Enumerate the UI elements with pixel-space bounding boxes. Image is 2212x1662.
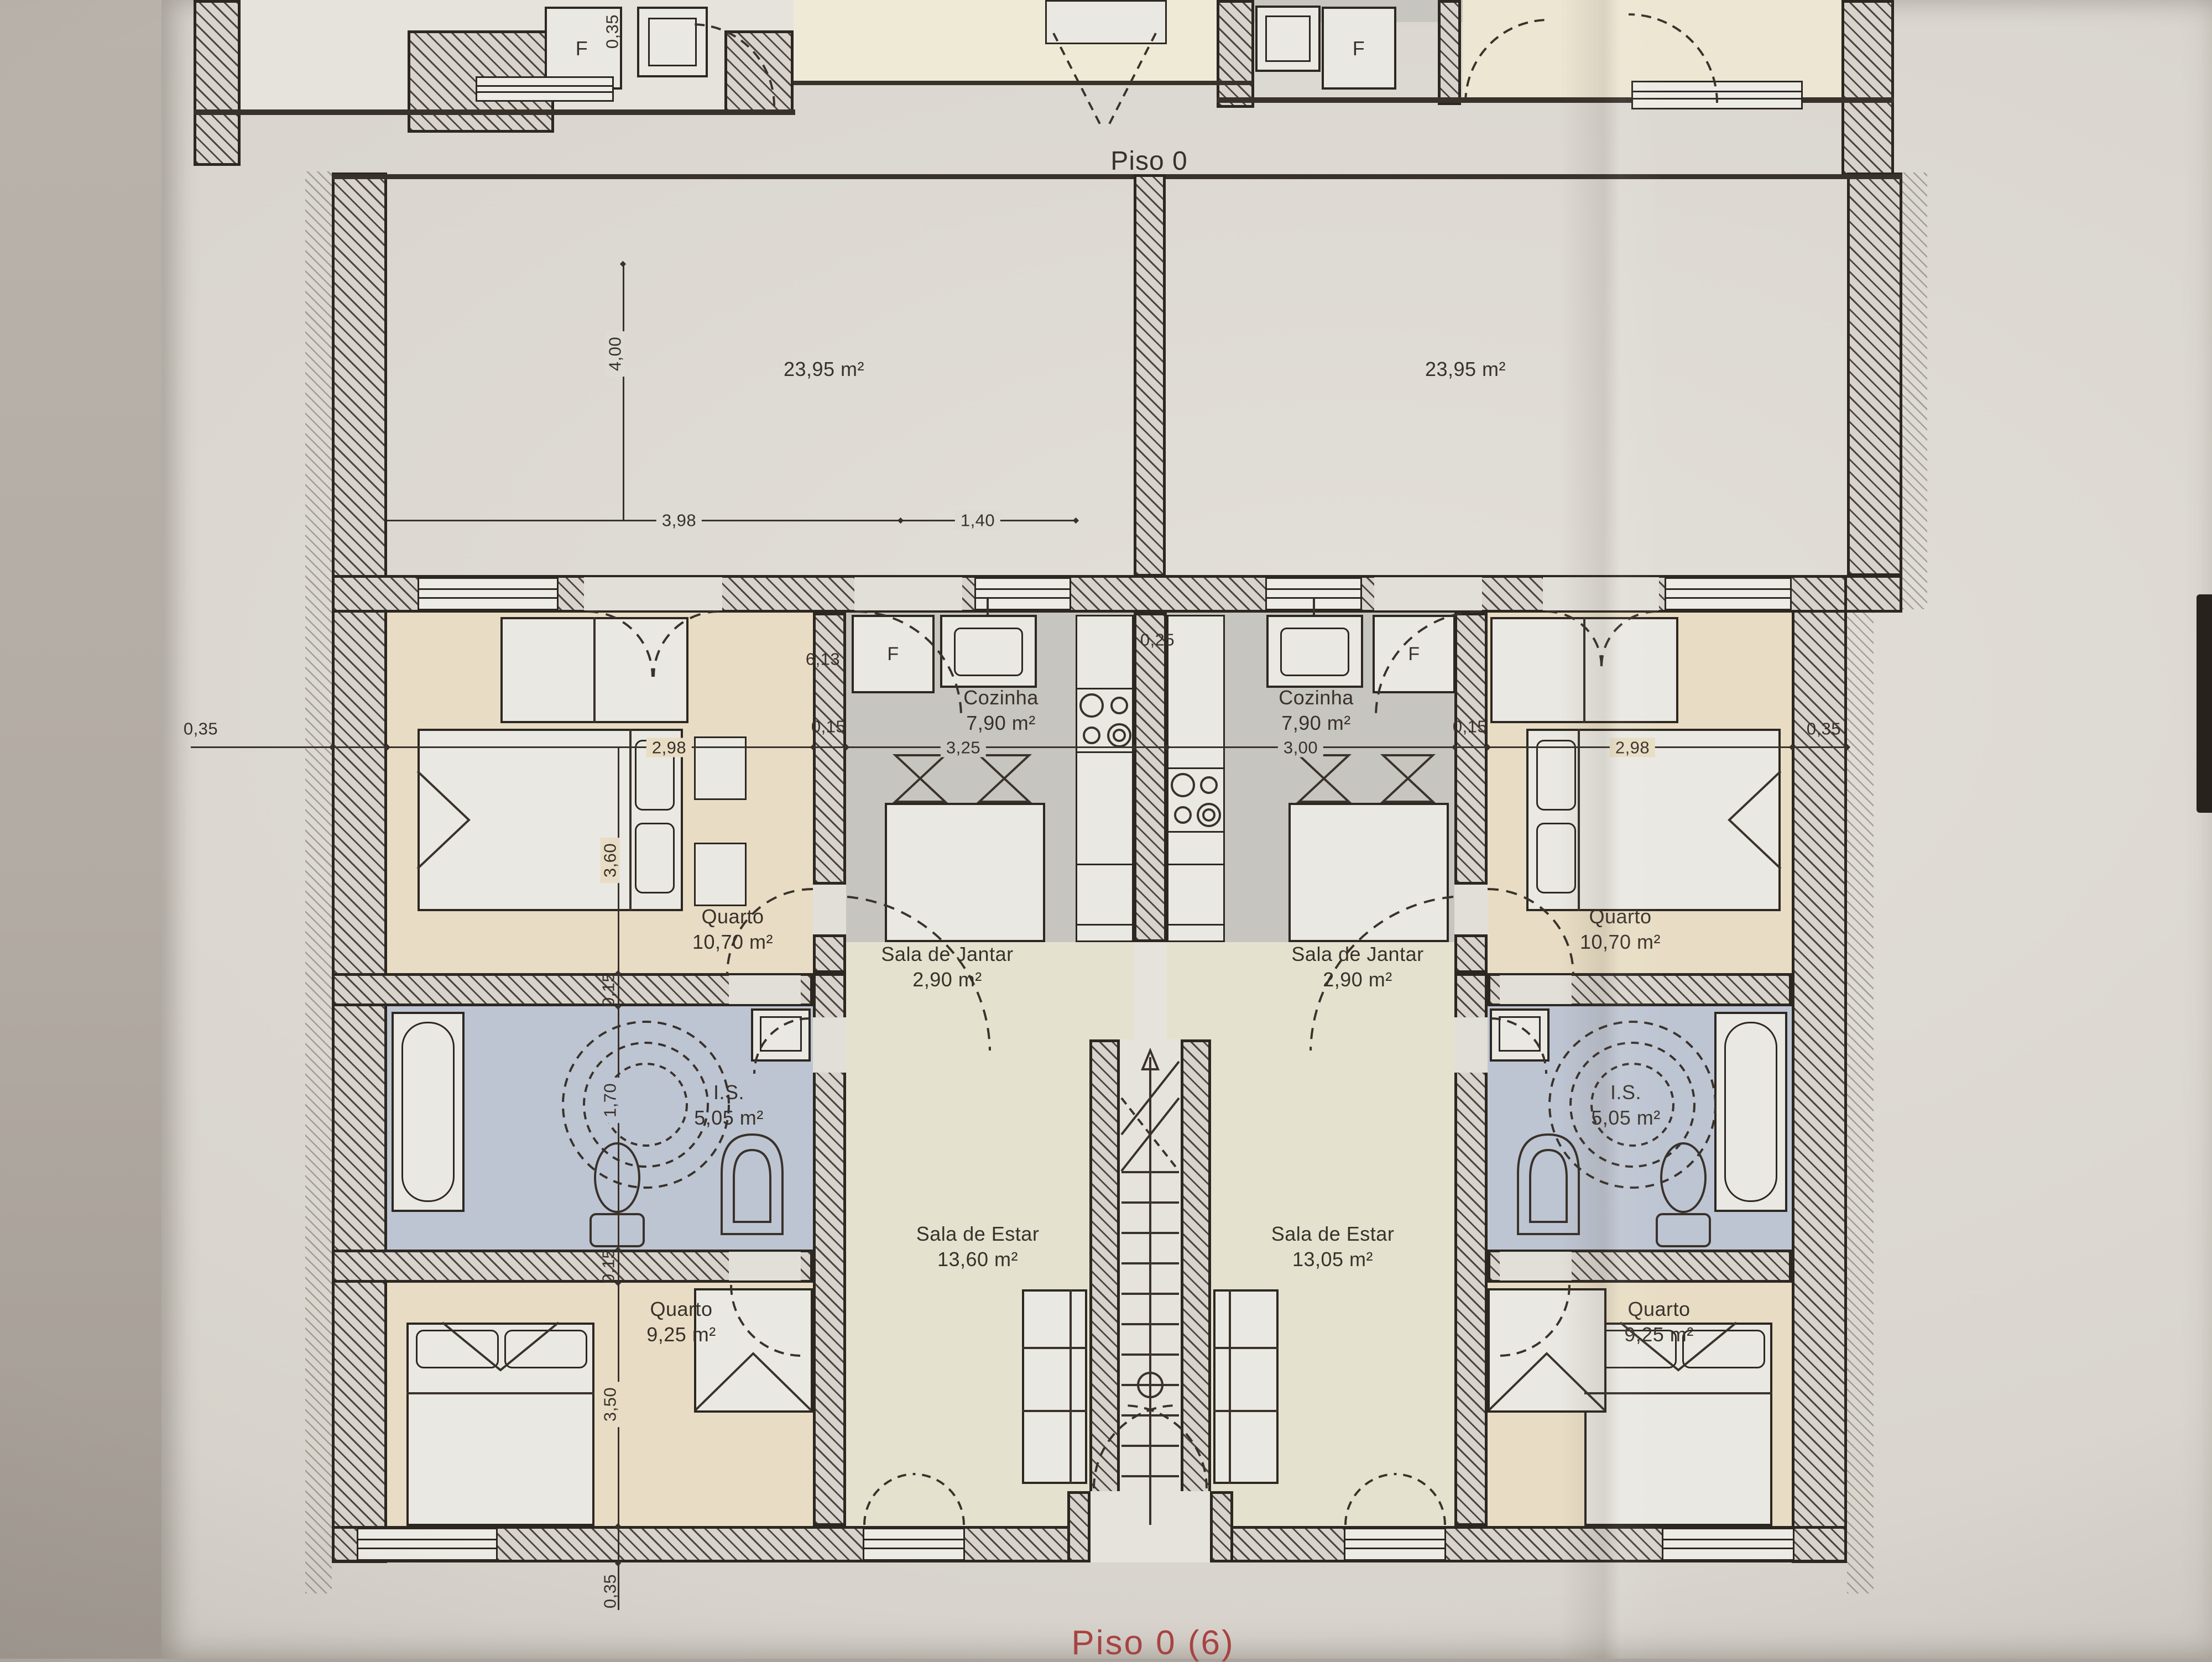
- stool: [895, 755, 945, 802]
- jantar-right-area: 2,90 m²: [1323, 970, 1392, 990]
- door-arc: [692, 24, 774, 106]
- dim-300: 3,00: [1278, 738, 1323, 757]
- door-arc: [1629, 14, 1717, 103]
- door-arc: [856, 612, 961, 717]
- dim-140: 1,40: [955, 511, 1000, 530]
- door-arc: [1488, 889, 1573, 975]
- blanket-fold: [442, 1323, 559, 1370]
- shower-circle-right: [1592, 1064, 1673, 1146]
- door-arc: [1376, 612, 1481, 717]
- terrace-left-area: 23,95 m²: [784, 359, 864, 379]
- sofa-lines: [1022, 1289, 1087, 1484]
- edge-object: [2197, 594, 2212, 813]
- quarto-grande-left-label: Quarto: [701, 907, 764, 927]
- dim-035-bottom: 0,35: [602, 1574, 619, 1608]
- dim-400: 4,00: [606, 331, 625, 377]
- toilet-left: [595, 1143, 639, 1212]
- dim-613: 6,13: [806, 651, 840, 668]
- sink-tap: [988, 598, 1314, 615]
- door-arc: [587, 612, 653, 677]
- jantar-left-label: Sala de Jantar: [881, 944, 1013, 964]
- plan-linework: [0, 0, 2212, 1659]
- stool: [1383, 755, 1433, 802]
- door-arc: [754, 1018, 810, 1074]
- floor-plan-photo: Piso 0: [0, 0, 2212, 1659]
- burner: [1203, 809, 1214, 820]
- cozinha-left-label: Cozinha: [963, 688, 1039, 708]
- door-arc: [1491, 1018, 1546, 1074]
- burner: [1172, 774, 1194, 796]
- door-arc: [1546, 612, 1601, 667]
- dim-035-left: 0,35: [184, 720, 218, 738]
- dim-015-wall2: 0,15: [600, 1249, 617, 1283]
- burner: [1084, 728, 1099, 743]
- wardrobe-fold: [696, 1353, 811, 1410]
- shower-circle-right: [1571, 1043, 1694, 1167]
- dim-360: 3,60: [601, 838, 620, 883]
- door-arc: [864, 1474, 915, 1525]
- estar-left-area: 13,60 m²: [937, 1250, 1018, 1269]
- upper-double-door-leaves: [1053, 33, 1156, 128]
- jantar-left-area: 2,90 m²: [912, 970, 982, 990]
- bidet-right-inner: [1530, 1150, 1567, 1222]
- quarto-pequeno-left-area: 9,25 m²: [646, 1325, 716, 1345]
- is-right-area: 5,05 m²: [1591, 1108, 1661, 1128]
- fridge-label-left: F: [887, 645, 899, 663]
- dim-170: 1,70: [601, 1078, 620, 1123]
- door-arc: [1394, 1474, 1445, 1525]
- wardrobe-fold: [1489, 1353, 1604, 1410]
- staircase: [1121, 1050, 1179, 1525]
- burner: [1112, 698, 1127, 713]
- dim-325: 3,25: [941, 738, 986, 757]
- sheet-footer: Piso 0 (6): [1071, 1626, 1234, 1660]
- stool: [1299, 755, 1349, 802]
- cozinha-right-label: Cozinha: [1279, 688, 1354, 708]
- quarto-grande-right-area: 10,70 m²: [1580, 932, 1661, 952]
- blanket-fold: [418, 771, 469, 869]
- quarto-grande-left-area: 10,70 m²: [692, 932, 773, 952]
- quarto-pequeno-right-area: 9,25 m²: [1624, 1325, 1694, 1345]
- sofa-lines: [1213, 1289, 1279, 1484]
- burner: [1175, 807, 1191, 823]
- cozinha-left-area: 7,90 m²: [966, 713, 1036, 733]
- dim-350: 3,50: [601, 1382, 620, 1427]
- door-arc: [1499, 1285, 1569, 1356]
- door-arc: [731, 1285, 802, 1356]
- estar-right-area: 13,05 m²: [1292, 1250, 1373, 1269]
- dim-298-right: 2,98: [1610, 738, 1655, 757]
- burner: [1114, 730, 1125, 741]
- jantar-right-label: Sala de Jantar: [1291, 944, 1423, 964]
- toilet-tank-right: [1657, 1214, 1710, 1246]
- terrace-right-area: 23,95 m²: [1425, 359, 1506, 379]
- quarto-pequeno-left-label: Quarto: [650, 1299, 712, 1319]
- cozinha-right-area: 7,90 m²: [1281, 713, 1351, 733]
- is-left-area: 5,05 m²: [694, 1108, 764, 1128]
- dim-015-wall: 0,15: [600, 973, 617, 1007]
- fridge-label-upper-left: F: [576, 39, 588, 59]
- door-arc: [913, 1474, 964, 1525]
- dim-035-right: 0,35: [1807, 720, 1841, 738]
- is-left-label: I.S.: [713, 1083, 744, 1102]
- estar-right-label: Sala de Estar: [1271, 1224, 1395, 1244]
- fridge-label-upper-right: F: [1353, 39, 1365, 59]
- door-arc: [1345, 1474, 1396, 1525]
- burner: [1198, 804, 1220, 826]
- bidet-left-inner: [734, 1150, 770, 1222]
- quarto-grande-right-label: Quarto: [1589, 907, 1651, 927]
- quarto-pequeno-right-label: Quarto: [1627, 1299, 1690, 1319]
- blanket-fold: [1729, 771, 1781, 869]
- shower-circle-left: [563, 1022, 729, 1188]
- dim-025: 0,25: [1140, 631, 1175, 649]
- dim-015-left: 0,15: [811, 718, 846, 735]
- is-right-label: I.S.: [1610, 1083, 1641, 1102]
- toilet-right: [1661, 1143, 1705, 1212]
- dim-015-right: 0,15: [1453, 718, 1487, 735]
- fridge-label-right: F: [1408, 645, 1420, 663]
- estar-left-label: Sala de Estar: [916, 1224, 1040, 1244]
- dim-035-top: 0,35: [604, 14, 621, 49]
- shower-circle-right: [1550, 1022, 1715, 1188]
- dim-398: 3,98: [656, 511, 702, 530]
- stool: [979, 755, 1029, 802]
- door-arc: [1465, 20, 1548, 103]
- toilet-tank-left: [591, 1214, 644, 1246]
- door-arc: [1601, 612, 1657, 667]
- burner: [1108, 724, 1130, 746]
- door-arc: [654, 612, 719, 677]
- burner: [1081, 694, 1103, 717]
- burner: [1201, 777, 1217, 793]
- dim-298-left: 2,98: [646, 738, 692, 757]
